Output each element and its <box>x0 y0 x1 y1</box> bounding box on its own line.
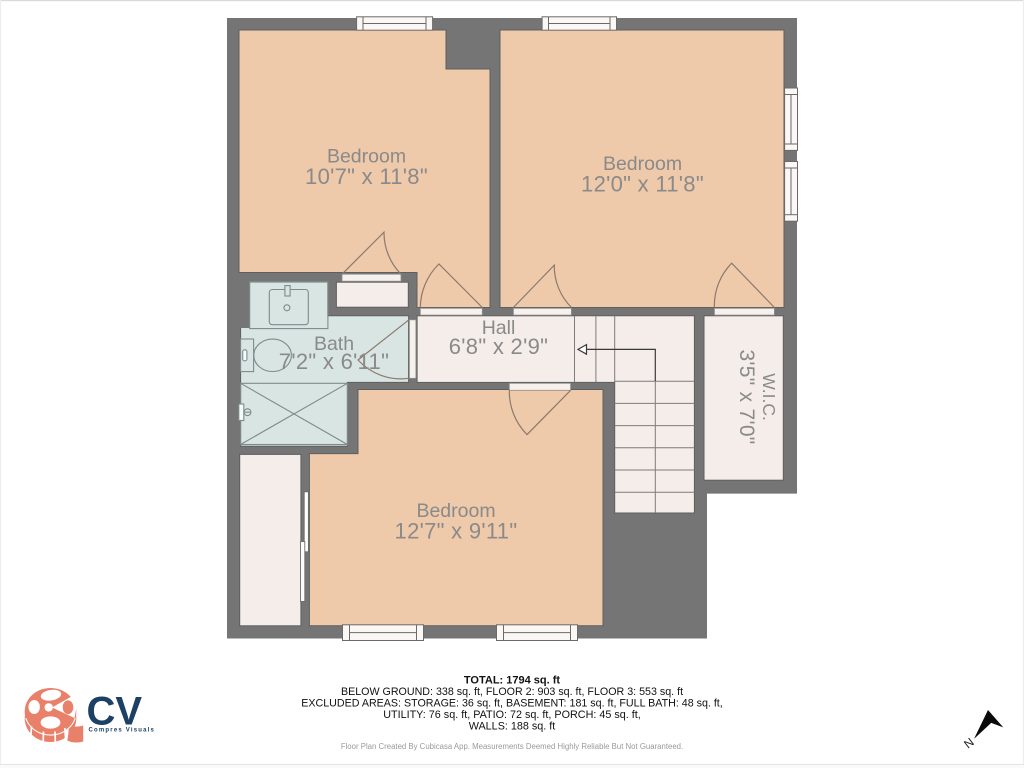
svg-text:UTILITY: 76 sq. ft, PATIO: 72: UTILITY: 76 sq. ft, PATIO: 72 sq. ft, PO… <box>383 709 641 721</box>
svg-text:12'7" x 9'11": 12'7" x 9'11" <box>395 519 518 544</box>
svg-text:W.I.C.: W.I.C. <box>759 373 779 421</box>
svg-text:12'0" x 11'8": 12'0" x 11'8" <box>581 172 704 197</box>
svg-text:Floor Plan Created By Cubicasa: Floor Plan Created By Cubicasa App. Meas… <box>341 742 683 751</box>
svg-text:TOTAL: 1794 sq. ft: TOTAL: 1794 sq. ft <box>464 675 561 687</box>
svg-text:WALLS: 188 sq. ft: WALLS: 188 sq. ft <box>469 721 556 733</box>
svg-text:N: N <box>961 735 976 751</box>
svg-text:7'2" x 6'11": 7'2" x 6'11" <box>279 349 389 374</box>
svg-text:Compres Visuals: Compres Visuals <box>89 727 156 733</box>
svg-text:3'5" x 7'0": 3'5" x 7'0" <box>735 349 758 444</box>
svg-text:BELOW GROUND: 338 sq. ft, FLOO: BELOW GROUND: 338 sq. ft, FLOOR 2: 903 s… <box>341 686 683 698</box>
svg-text:10'7" x 11'8": 10'7" x 11'8" <box>305 164 428 189</box>
svg-text:6'8" x 2'9": 6'8" x 2'9" <box>449 334 549 359</box>
svg-text:EXCLUDED AREAS: STORAGE: 36 sq: EXCLUDED AREAS: STORAGE: 36 sq. ft, BASE… <box>301 698 723 710</box>
